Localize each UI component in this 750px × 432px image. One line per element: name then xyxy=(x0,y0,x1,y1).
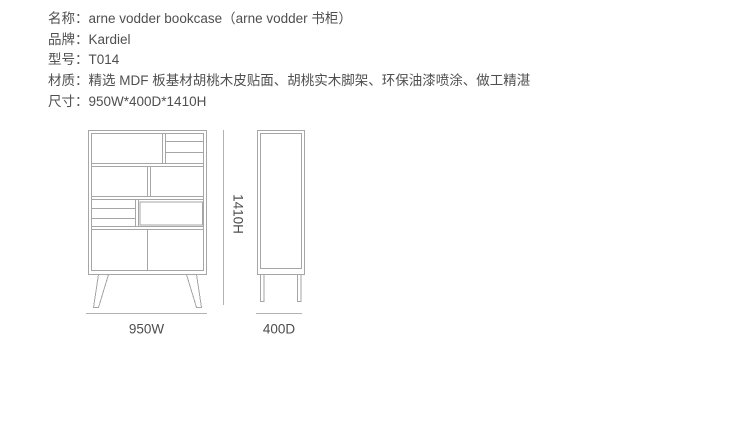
product-spec-block: 名称：arne vodder bookcase（arne vodder 书柜） … xyxy=(48,9,530,112)
spec-row-name: 名称：arne vodder bookcase（arne vodder 书柜） xyxy=(48,9,530,30)
front-row1-divider xyxy=(163,134,166,164)
height-dimension-label: 1410H xyxy=(231,194,246,234)
side-outer-frame xyxy=(258,131,305,275)
front-leg-left xyxy=(94,275,109,308)
spec-value-model: T014 xyxy=(89,52,120,67)
side-inner-frame xyxy=(261,134,302,269)
front-row3-divider xyxy=(136,200,139,227)
bookcase-technical-drawing: 1410H 950W 400D xyxy=(80,122,340,340)
spec-value-brand: Kardiel xyxy=(89,32,131,47)
spec-label-name: 名称： xyxy=(48,11,89,26)
side-leg-front xyxy=(261,275,265,302)
side-leg-back xyxy=(298,275,302,302)
spec-row-material: 材质：精选 MDF 板基材胡桃木皮贴面、胡桃实木脚架、环保油漆喷涂、做工精湛 xyxy=(48,71,530,92)
spec-label-brand: 品牌： xyxy=(48,32,89,47)
spec-row-size: 尺寸：950W*400D*1410H xyxy=(48,92,530,113)
spec-value-material: 精选 MDF 板基材胡桃木皮贴面、胡桃实木脚架、环保油漆喷涂、做工精湛 xyxy=(89,73,531,88)
spec-label-size: 尺寸： xyxy=(48,94,89,109)
front-shelf-3 xyxy=(92,227,204,230)
spec-label-material: 材质： xyxy=(48,73,89,88)
spec-value-name: arne vodder bookcase（arne vodder 书柜） xyxy=(89,11,352,26)
front-row2-divider xyxy=(148,167,151,197)
spec-row-model: 型号：T014 xyxy=(48,50,530,71)
front-leg-right xyxy=(187,275,202,308)
spec-row-brand: 品牌：Kardiel xyxy=(48,30,530,51)
spec-value-size: 950W*400D*1410H xyxy=(89,94,207,109)
front-view-drawing xyxy=(89,131,207,308)
depth-dimension-label: 400D xyxy=(263,322,296,337)
front-row3-compartment xyxy=(140,202,203,225)
width-dimension-label: 950W xyxy=(129,322,165,337)
dimension-drawing: 1410H 950W 400D xyxy=(80,122,340,340)
spec-label-model: 型号： xyxy=(48,52,89,67)
side-view-drawing xyxy=(258,131,305,302)
